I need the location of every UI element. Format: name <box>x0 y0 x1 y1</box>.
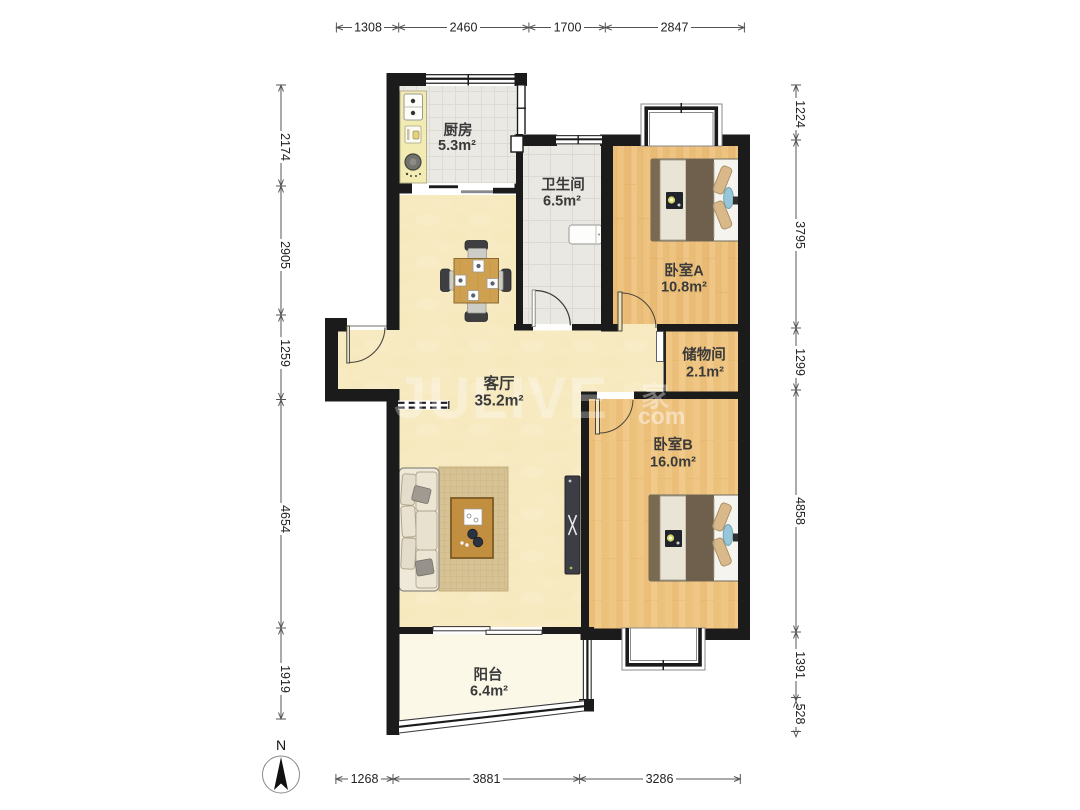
svg-text:4654: 4654 <box>278 505 292 533</box>
svg-text:2460: 2460 <box>450 21 478 35</box>
svg-text:1919: 1919 <box>278 665 292 693</box>
svg-text:3286: 3286 <box>646 772 674 786</box>
svg-text:3881: 3881 <box>473 772 501 786</box>
svg-text:1224: 1224 <box>793 100 807 128</box>
svg-text:1268: 1268 <box>351 772 379 786</box>
svg-text:528: 528 <box>793 704 807 725</box>
svg-text:N: N <box>276 737 286 753</box>
svg-text:3795: 3795 <box>793 221 807 249</box>
svg-text:1299: 1299 <box>793 348 807 376</box>
svg-text:阳台: 阳台 <box>474 666 503 684</box>
svg-text:1259: 1259 <box>278 339 292 367</box>
svg-text:com: com <box>638 403 685 429</box>
svg-text:卫生间: 卫生间 <box>541 176 585 194</box>
svg-text:储物间: 储物间 <box>682 346 726 364</box>
svg-text:1391: 1391 <box>793 651 807 679</box>
svg-text:6.4m²: 6.4m² <box>470 684 508 700</box>
svg-text:1700: 1700 <box>554 21 582 35</box>
svg-text:35.2m²: 35.2m² <box>474 393 523 410</box>
svg-text:卧室B: 卧室B <box>653 436 692 454</box>
svg-text:2174: 2174 <box>278 133 292 161</box>
svg-text:6.5m²: 6.5m² <box>543 194 581 210</box>
svg-text:2.1m²: 2.1m² <box>686 365 724 381</box>
svg-text:1308: 1308 <box>354 21 382 35</box>
svg-text:2847: 2847 <box>661 21 689 35</box>
svg-text:4858: 4858 <box>793 497 807 525</box>
svg-text:客厅: 客厅 <box>483 374 515 393</box>
svg-text:2905: 2905 <box>278 241 292 269</box>
svg-text:16.0m²: 16.0m² <box>650 455 696 471</box>
svg-text:厨房: 厨房 <box>444 121 473 139</box>
svg-text:10.8m²: 10.8m² <box>661 280 707 296</box>
svg-text:卧室A: 卧室A <box>664 262 704 280</box>
svg-text:5.3m²: 5.3m² <box>438 138 476 154</box>
